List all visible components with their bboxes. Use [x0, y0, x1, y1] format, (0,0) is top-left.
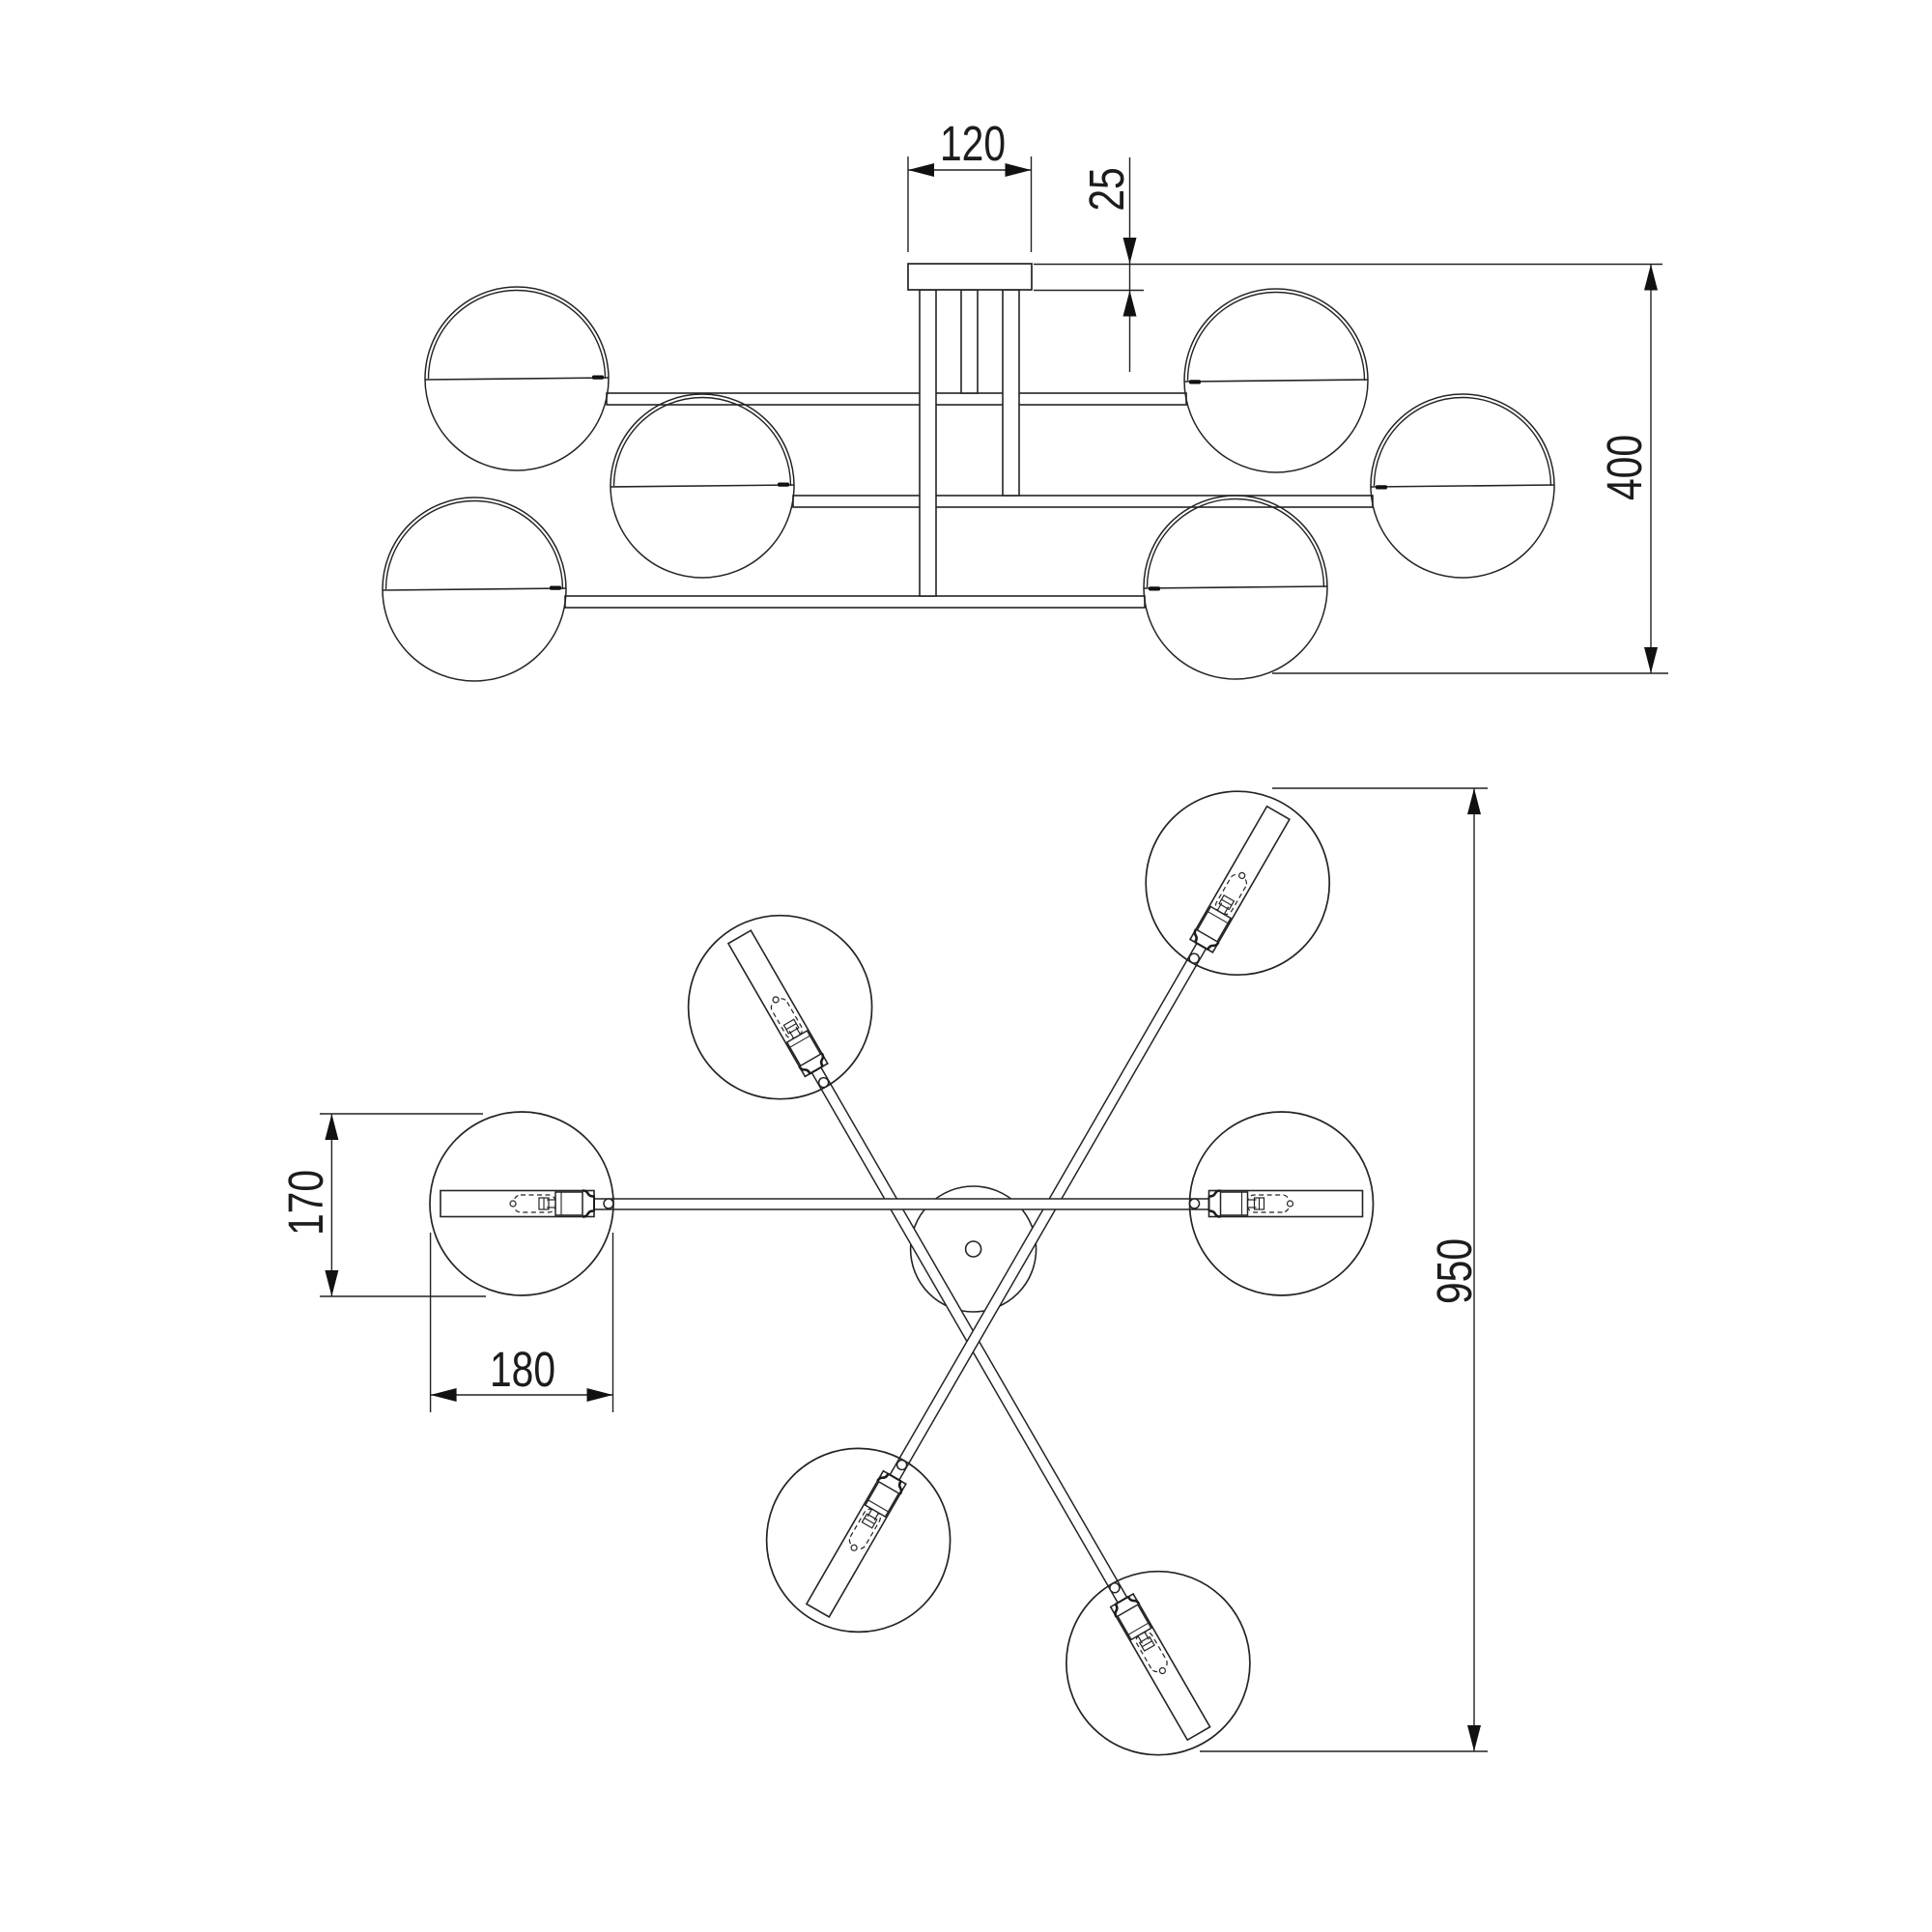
- svg-text:400: 400: [1597, 435, 1652, 500]
- svg-text:25: 25: [1079, 167, 1134, 211]
- svg-text:120: 120: [940, 116, 1006, 171]
- svg-text:180: 180: [490, 1342, 555, 1397]
- svg-text:170: 170: [278, 1170, 333, 1236]
- svg-text:950: 950: [1427, 1238, 1482, 1304]
